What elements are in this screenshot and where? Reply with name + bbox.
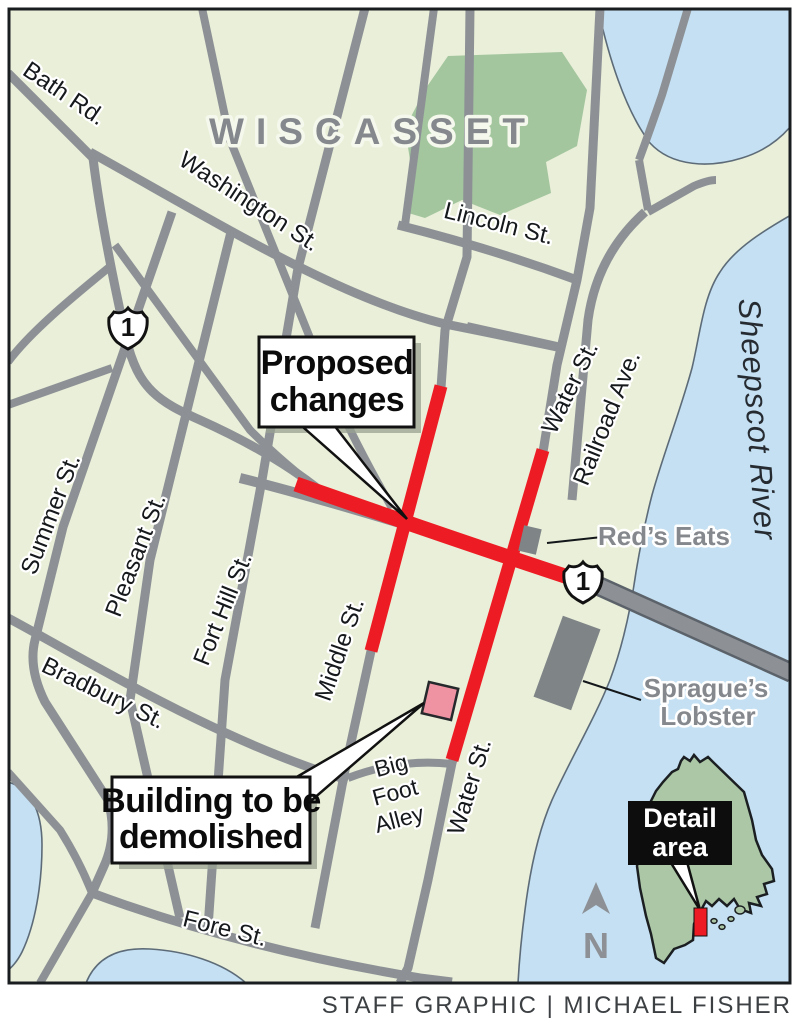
detail-area-label: Detailarea (643, 803, 717, 862)
demolish-label: Building to bedemolished (101, 782, 321, 856)
maine-island-1 (711, 919, 717, 924)
map-canvas: Bath Rd. Washington St. Lincoln St. Summ… (0, 0, 799, 1024)
wiscasset-map-graphic: Bath Rd. Washington St. Lincoln St. Summ… (0, 0, 799, 1024)
proposed-label: Proposedchanges (261, 344, 414, 419)
building-to-demolish-marker (422, 682, 458, 720)
us1-shield-north-number: 1 (121, 312, 135, 342)
us1-shield-south-number: 1 (576, 566, 590, 596)
detail-area-marker (694, 908, 707, 936)
city-label: WISCASSET (209, 111, 537, 152)
maine-island-3 (728, 917, 734, 922)
maine-island-4 (735, 906, 745, 914)
reds-eats-label: Red’s Eats (598, 521, 730, 551)
maine-island-2 (719, 925, 725, 930)
north-label: N (583, 925, 609, 966)
credit-line: STAFF GRAPHIC | MICHAEL FISHER (322, 992, 792, 1019)
spragues-lobster-label: Sprague’sLobster (644, 673, 769, 731)
